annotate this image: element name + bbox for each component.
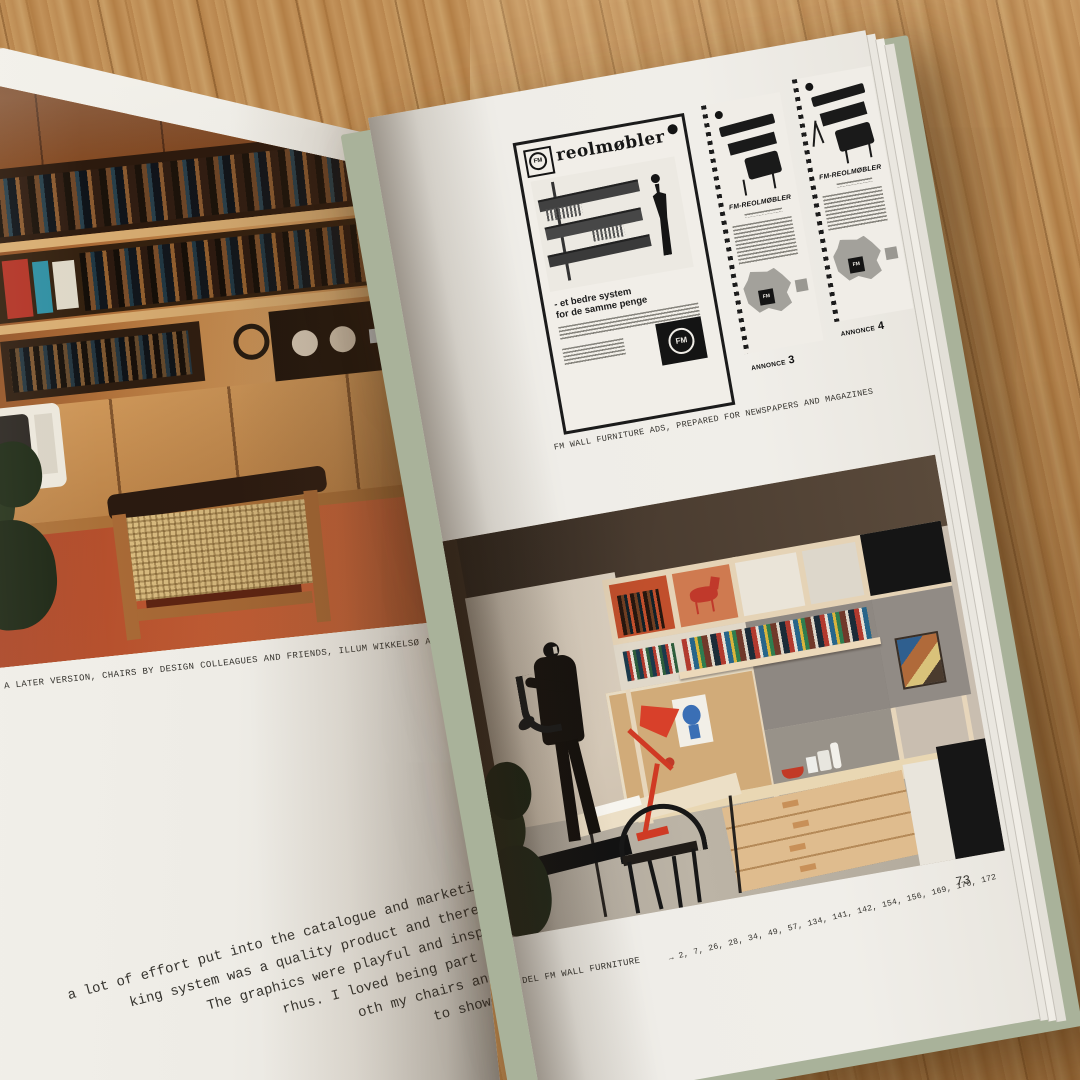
left-page-body-text: a lot of effort put into the catalogue a… — [66, 844, 508, 1080]
right-photo-fm-wall-system — [427, 455, 1005, 940]
fm-logo-icon: FM — [758, 288, 775, 305]
ad-reolmobler: FM reolmøbler - et bedre system for de s… — [513, 113, 736, 435]
annonce-3-label: ANNONCE 3 — [750, 354, 796, 373]
gray-square — [795, 278, 809, 292]
ad-heading: FM-REOLMØBLER — [729, 194, 792, 212]
woman-figure — [650, 173, 660, 183]
ad-small-text — [562, 338, 626, 366]
furniture-leg — [772, 172, 777, 188]
furniture-leg — [868, 143, 872, 157]
ad-subline — [744, 207, 782, 218]
annonce-word: ANNONCE — [751, 359, 787, 372]
annonce-number: 4 — [877, 320, 885, 333]
furniture-leg — [742, 180, 747, 196]
annonce-word: ANNONCE — [840, 325, 876, 338]
ad-body-text — [822, 186, 887, 232]
ad-body-text — [732, 216, 798, 266]
ad-heading: FM-REOLMØBLER — [819, 164, 882, 182]
fm-logo-circle: FM — [528, 151, 549, 172]
page-number: 73 — [954, 873, 971, 889]
gray-square — [884, 246, 898, 260]
fm-logo-box: FM — [655, 316, 708, 365]
fm-logo-icon: FM — [666, 326, 696, 356]
ad-illustration — [531, 156, 694, 292]
registration-dot-icon — [667, 123, 679, 135]
photo-vignette — [427, 455, 1005, 940]
dot-icon — [714, 110, 723, 119]
annonce-number: 3 — [787, 354, 795, 367]
annonce-4-label: ANNONCE 4 — [840, 320, 886, 339]
fm-logo-icon: FM — [523, 146, 555, 178]
furniture-leg — [845, 149, 849, 163]
dot-icon — [805, 82, 814, 91]
ad-subline — [837, 177, 873, 187]
photo-open-design-book: A LATER VERSION, CHAIRS BY DESIGN COLLEA… — [0, 0, 1080, 1080]
bottom-caption-fragment: DEL FM WALL FURNITURE — [521, 956, 641, 987]
furniture-illustration — [744, 150, 783, 180]
fm-logo-icon: FM — [848, 256, 865, 273]
